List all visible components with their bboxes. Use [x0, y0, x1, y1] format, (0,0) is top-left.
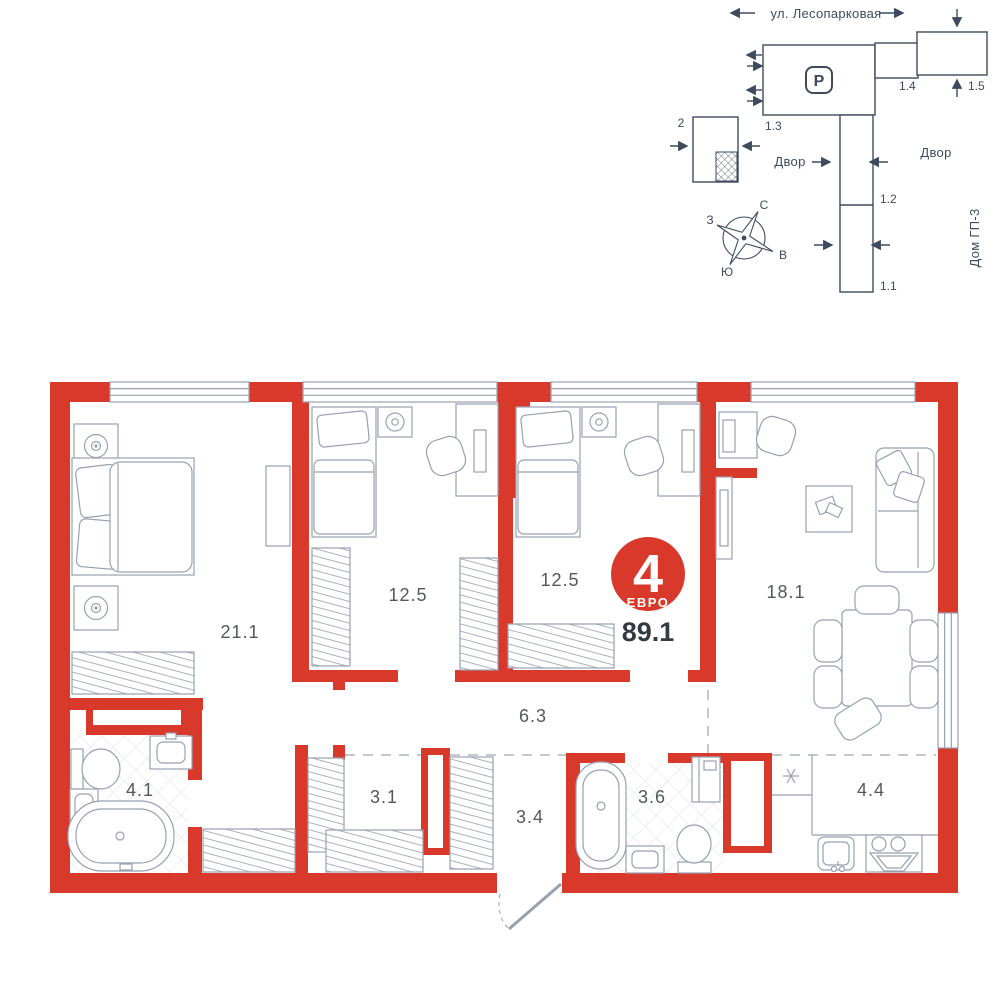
plan-svg: ул. Лесопарковая P 2 1.3 1.4 1.5 1.2 1.1… — [0, 0, 1000, 1000]
monitor — [682, 430, 694, 472]
toilet — [677, 825, 711, 873]
street-label: ул. Лесопарковая — [770, 6, 881, 21]
monitor — [723, 420, 735, 452]
furniture-bedroom-master — [72, 424, 290, 694]
building-1-3-label: 1.3 — [765, 119, 782, 133]
compass-south-label: Ю — [721, 265, 733, 279]
window — [110, 382, 249, 402]
room-area-label: 18.1 — [766, 582, 805, 602]
single-bed — [516, 407, 580, 537]
desk — [719, 412, 757, 458]
wardrobe — [460, 558, 498, 670]
wardrobe — [326, 830, 423, 872]
compass-west-label: З — [706, 213, 713, 227]
room-area-label: 3.1 — [370, 787, 398, 807]
dining-chair — [814, 620, 842, 662]
building-1-1-label: 1.1 — [880, 279, 897, 293]
stove — [866, 835, 922, 872]
building-1-4-label: 1.4 — [899, 79, 916, 93]
single-bed — [312, 407, 376, 537]
house-gp3-label: Дом ГП-3 — [967, 208, 982, 267]
bathtub — [576, 762, 626, 869]
dining-chair — [910, 620, 938, 662]
building-1-4 — [875, 43, 918, 78]
room-area-label: 21.1 — [220, 622, 259, 642]
wardrobe — [450, 757, 493, 869]
room-area-label: 3.6 — [638, 787, 666, 807]
dining-table — [814, 586, 938, 743]
wardrobe — [72, 652, 194, 694]
compass-east-label: В — [779, 248, 787, 262]
dining-chair — [910, 666, 938, 708]
room-area-label: 3.4 — [516, 807, 544, 827]
nightstand-lamp — [378, 407, 412, 437]
nightstand-lamp — [74, 586, 118, 630]
monitor — [474, 430, 486, 472]
window — [303, 382, 497, 402]
yard-label-right: Двор — [920, 145, 951, 160]
double-bed — [72, 458, 194, 575]
furniture-wardrobe-room — [308, 758, 423, 872]
room-count-badge: 4 ЕВРО 89.1 — [611, 537, 685, 647]
compass-icon — [717, 212, 773, 265]
furniture-bedroom-2 — [312, 404, 498, 670]
dining-chair — [814, 666, 842, 708]
fridge-symbol — [783, 769, 799, 783]
furniture-living-room — [716, 412, 938, 743]
counter-lines — [772, 755, 938, 835]
room-area-label: 4.4 — [857, 780, 885, 800]
duct-shaft — [93, 710, 181, 725]
window — [751, 382, 915, 402]
compass-north-label: С — [760, 198, 769, 212]
tv-console — [716, 477, 732, 559]
floorplan-page: ул. Лесопарковая P 2 1.3 1.4 1.5 1.2 1.1… — [0, 0, 1000, 1000]
dining-chair — [855, 586, 899, 614]
building-2-commercial-hatch — [716, 152, 737, 181]
building-1-5 — [917, 32, 987, 75]
furniture-kitchen — [772, 755, 938, 872]
building-2-label: 2 — [678, 116, 685, 130]
nightstand-lamp — [582, 407, 616, 437]
dresser — [266, 466, 290, 546]
chair — [753, 413, 798, 458]
building-1-2-label: 1.2 — [880, 192, 897, 206]
sink — [626, 846, 664, 873]
kitchen-sink — [818, 837, 854, 872]
building-tower — [840, 115, 873, 292]
desk — [658, 404, 700, 496]
wardrobe — [508, 624, 614, 668]
room-area-label: 4.1 — [126, 780, 154, 800]
window — [551, 382, 697, 402]
room-area-label: 12.5 — [540, 570, 579, 590]
building-1-5-label: 1.5 — [968, 79, 985, 93]
wardrobe — [203, 829, 295, 872]
total-area-label: 89.1 — [622, 617, 675, 647]
sink — [150, 733, 192, 769]
room-area-label: 6.3 — [519, 706, 547, 726]
toilet — [71, 749, 120, 789]
sofa — [875, 448, 934, 572]
wardrobe — [312, 548, 350, 666]
bathtub — [68, 801, 174, 871]
cabinet — [692, 757, 720, 802]
room-area-label: 12.5 — [388, 585, 427, 605]
badge-type-label: ЕВРО — [627, 595, 670, 610]
parking-letter: P — [814, 73, 825, 90]
window — [938, 613, 958, 748]
coffee-table — [806, 486, 852, 532]
yard-label-left: Двор — [774, 154, 805, 169]
